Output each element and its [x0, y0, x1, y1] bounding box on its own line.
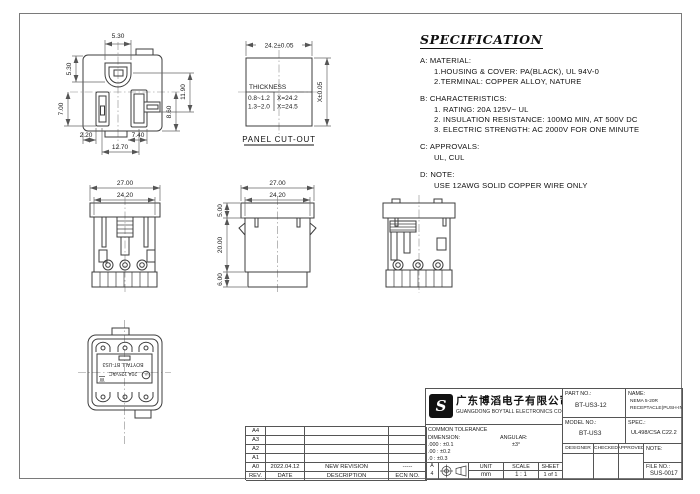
sheet-size-number: 4 — [426, 471, 438, 479]
approved-label: APPROVED — [619, 444, 644, 454]
front-view: 27.00 24.20 — [58, 175, 183, 297]
spec-line: 2.TERMINAL: COPPER ALLOY, NATURE — [434, 77, 686, 87]
dim-label: 24.20 — [269, 192, 286, 199]
part-no-cell: PART NO.: BT-US3-12 — [563, 389, 626, 418]
revision-rev: A0 — [246, 463, 266, 472]
file-no-cell: FILE NO.: SUS-0017 — [644, 463, 682, 479]
thickness-row: 1.3~2.0 — [248, 104, 270, 111]
title-block: S 广东博滔电子有限公司 GUANGDONG BOYTALL ELECTRONI… — [425, 388, 683, 480]
panel-cutout-view: 24.2±0.05 X±0.05 THICKNESS 0.8~1.2 X=24.… — [235, 28, 405, 163]
engineering-drawing-sheet: 5.30 5.30 7.00 11.90 8.60 2.20 7.40 12.7… — [0, 0, 700, 494]
revision-date: 2022.04.12 — [266, 463, 305, 472]
bottom-view: 20A 125VAC BOYTALL BT-US3 UL W — [68, 318, 203, 453]
spec-section-heading: NOTE: — [430, 170, 454, 179]
specification-title: SPECIFICATION — [420, 32, 543, 49]
dim-label: 5.30 — [112, 33, 125, 40]
revision-rev: A3 — [246, 436, 266, 445]
thickness-row: X=24.5 — [277, 104, 298, 111]
spec-line: 2. INSULATION RESISTANCE: 100MΩ MIN, AT … — [434, 115, 686, 125]
sheet-cell: SHEET 1 of 1 — [539, 463, 563, 479]
scale-cell: SCALE 1 : 1 — [504, 463, 539, 479]
dim-label: 12.70 — [112, 144, 129, 151]
dim-label: 5.30 — [66, 62, 73, 75]
revision-ecn — [389, 445, 427, 454]
boytall-logo: S — [429, 394, 453, 418]
dim-label: 6.00 — [217, 273, 224, 286]
revision-date — [266, 427, 305, 436]
thickness-row: 0.8~1.2 — [248, 95, 270, 102]
spec-section-label: C: — [420, 142, 428, 151]
company-name-cn: 广东博滔电子有限公司 — [456, 393, 563, 408]
revision-description — [305, 445, 389, 454]
thickness-table: THICKNESS 0.8~1.2 X=24.2 1.3~2.0 X=24.5 — [246, 84, 312, 111]
revision-date — [266, 454, 305, 463]
revision-description: NEW REVISION — [305, 463, 389, 472]
part-no-value: BT-US3-12 — [575, 402, 607, 409]
angular-value: ±3° — [512, 442, 520, 448]
unit-cell: UNIT mm — [469, 463, 504, 479]
tolerance-title: COMMON TOLERANCE — [428, 427, 487, 433]
spec-section-heading: MATERIAL: — [430, 56, 471, 65]
thickness-title: THICKNESS — [249, 84, 287, 91]
designer-label: DESIGNER — [563, 444, 594, 454]
spec-section-heading: APPROVALS: — [430, 142, 480, 151]
unit-label: UNIT — [469, 463, 503, 471]
projection-symbol-cell — [439, 463, 469, 479]
dim-label: 20.00 — [217, 236, 224, 253]
spec-label: SPEC.: — [628, 420, 646, 426]
revision-table: A4 A3 A2 A1 A0 2022.04.12 NEW REVISION -… — [245, 426, 426, 480]
specification-block: SPECIFICATION A: MATERIAL: 1.HOUSING & C… — [420, 31, 686, 198]
marking-w: W — [99, 376, 104, 382]
view-caption: PANEL CUT-OUT — [242, 135, 316, 144]
note-label: NOTE: — [646, 446, 662, 452]
model-no-label: MODEL NO.: — [565, 420, 597, 426]
side-view: 27.00 24.20 5.00 20.00 6.00 — [213, 175, 348, 297]
revision-header-date: DATE — [266, 472, 305, 481]
company-cell: S 广东博滔电子有限公司 GUANGDONG BOYTALL ELECTRONI… — [426, 389, 563, 425]
spec-line: 1. RATING: 20A 125V~ UL — [434, 105, 686, 115]
spec-section-characteristics: B: CHARACTERISTICS: 1. RATING: 20A 125V~… — [420, 94, 686, 135]
revision-ecn — [389, 427, 427, 436]
scale-value: 1 : 1 — [504, 471, 538, 479]
spec-line: 3. ELECTRIC STRENGTH: AC 2000V FOR ONE M… — [434, 125, 686, 135]
dim-label: 27.00 — [117, 180, 134, 187]
tolerance-cell: COMMON TOLERANCE DIMENSION: ANGULAR: ±3°… — [426, 425, 563, 463]
dim-label: 24.2±0.05 — [265, 43, 294, 50]
dim-label: 24.20 — [117, 192, 134, 199]
note-cell: NOTE: — [644, 444, 682, 463]
tolerance-row: .0 : ±0.3 — [428, 456, 447, 462]
scale-label: SCALE — [504, 463, 538, 471]
spec-section-label: A: — [420, 56, 428, 65]
rear-view — [368, 183, 483, 295]
thickness-row: X=24.2 — [277, 95, 298, 102]
receptacle-outline — [83, 49, 162, 137]
spec-section-approvals: C: APPROVALS: UL, CUL — [420, 142, 686, 163]
revision-rev: A1 — [246, 454, 266, 463]
sheet-label: SHEET — [539, 463, 562, 471]
spec-section-label: D: — [420, 170, 428, 179]
spec-section-material: A: MATERIAL: 1.HOUSING & COVER: PA(BLACK… — [420, 56, 686, 87]
angular-label: ANGULAR: — [500, 435, 528, 441]
revision-description — [305, 427, 389, 436]
file-no-value: SUS-0017 — [650, 471, 678, 477]
revision-header-ecn: ECN NO. — [389, 472, 427, 481]
checked-signature-cell — [594, 454, 619, 479]
sheet-size-cell: A 4 — [426, 463, 439, 479]
spec-line: 1.HOUSING & COVER: PA(BLACK), UL 94V-0 — [434, 67, 686, 77]
dim-label: 7.00 — [58, 102, 65, 115]
spec-value: UL498/CSA C22.2 — [631, 430, 677, 436]
dimensions: 27.00 24.20 5.00 20.00 6.00 — [217, 180, 314, 287]
name-label: NAME: — [628, 391, 645, 397]
tolerance-row: .000 : ±0.1 — [428, 442, 453, 448]
revision-rev: A2 — [246, 445, 266, 454]
name-value-line2: RECEPTACLE(PUSH-IN) — [630, 406, 682, 411]
dim-label: 2.20 — [80, 132, 93, 139]
revision-ecn — [389, 454, 427, 463]
dim-label: 27.00 — [269, 180, 286, 187]
dim-label: 5.00 — [217, 204, 224, 217]
revision-description — [305, 454, 389, 463]
dimensions: 27.00 24.20 — [90, 180, 160, 215]
sheet-size-letter: A — [426, 463, 438, 471]
spec-cell: SPEC.: UL498/CSA C22.2 — [626, 418, 682, 444]
part-no-label: PART NO.: — [565, 391, 591, 397]
marking-rating: 20A 125VAC — [108, 370, 137, 376]
revision-date — [266, 445, 305, 454]
dim-label: 8.60 — [166, 105, 173, 118]
file-no-label: FILE NO.: — [646, 464, 670, 470]
dim-label: 7.40 — [132, 132, 145, 139]
front-face-view: 5.30 5.30 7.00 11.90 8.60 2.20 7.40 12.7… — [28, 22, 234, 167]
model-no-value: BT-US3 — [579, 430, 601, 437]
revision-rev: A4 — [246, 427, 266, 436]
checked-label: CHECKED — [594, 444, 619, 454]
revision-ecn — [389, 436, 427, 445]
spec-line: UL, CUL — [434, 153, 686, 163]
revision-header-description: DESCRIPTION — [305, 472, 389, 481]
revision-ecn: ----- — [389, 463, 427, 472]
spec-section-heading: CHARACTERISTICS: — [430, 94, 507, 103]
name-value-line1: NEMA 5-20R — [630, 399, 658, 404]
marking-brand: BOYTALL BT-US3 — [102, 361, 143, 367]
model-no-cell: MODEL NO.: BT-US3 — [563, 418, 626, 444]
approved-signature-cell — [619, 454, 644, 479]
revision-header-rev: REV. — [246, 472, 266, 481]
dim-label: 11.90 — [180, 84, 187, 100]
designer-signature-cell — [563, 454, 594, 479]
revision-date — [266, 436, 305, 445]
dim-label: X±0.05 — [317, 81, 324, 102]
sheet-value: 1 of 1 — [539, 471, 562, 479]
dimensions: 24.2±0.05 X±0.05 — [246, 40, 331, 126]
spec-section-label: B: — [420, 94, 428, 103]
name-cell: NAME: NEMA 5-20R RECEPTACLE(PUSH-IN) — [626, 389, 682, 418]
third-angle-projection-icon — [440, 464, 468, 478]
company-name-en: GUANGDONG BOYTALL ELECTRONICS CO.,LTD — [456, 409, 563, 415]
ul-mark-text: UL — [144, 372, 149, 376]
dimension-label: DIMENSION: — [428, 435, 460, 441]
revision-description — [305, 436, 389, 445]
unit-value: mm — [469, 471, 503, 479]
tolerance-row: .00 : ±0.2 — [428, 449, 450, 455]
